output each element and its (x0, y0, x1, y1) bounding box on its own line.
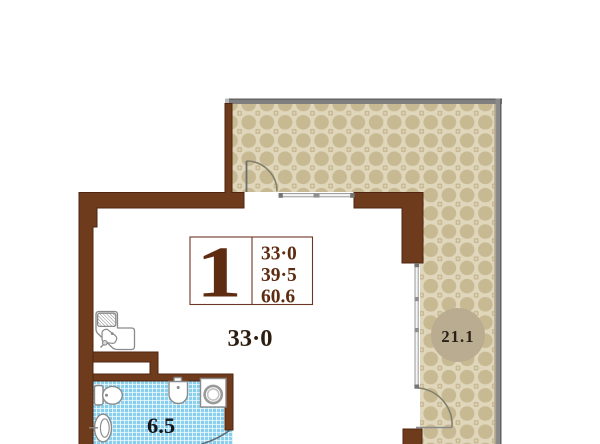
svg-text:6.5: 6.5 (147, 413, 175, 438)
svg-text:33·0: 33·0 (261, 244, 297, 265)
svg-text:1: 1 (196, 231, 242, 312)
svg-text:60.6: 60.6 (261, 287, 295, 308)
svg-text:33·0: 33·0 (228, 325, 273, 352)
svg-text:21.1: 21.1 (441, 327, 474, 346)
svg-text:39·5: 39·5 (261, 265, 297, 286)
